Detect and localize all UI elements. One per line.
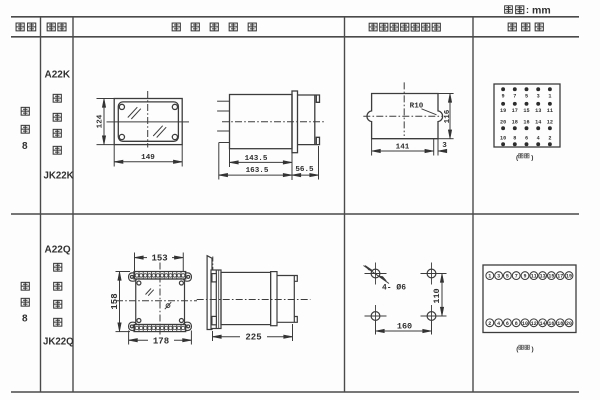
svg-text:16: 16 (523, 119, 529, 125)
svg-text:12: 12 (531, 321, 537, 327)
svg-text:11: 11 (531, 274, 537, 280)
svg-text:3: 3 (497, 274, 500, 280)
svg-text:8: 8 (22, 141, 28, 152)
svg-text:14: 14 (540, 321, 546, 327)
svg-text:A22Q: A22Q (45, 245, 71, 256)
svg-text:12: 12 (547, 119, 553, 125)
svg-text::: : (526, 5, 529, 15)
svg-text:9: 9 (523, 274, 526, 280)
svg-text:8: 8 (513, 136, 516, 142)
svg-text:4: 4 (497, 321, 500, 327)
svg-text:143.5: 143.5 (245, 155, 268, 163)
svg-text:5: 5 (506, 274, 509, 280)
svg-text:): ) (531, 346, 535, 353)
svg-text:15: 15 (548, 274, 554, 280)
svg-text:10: 10 (500, 136, 506, 142)
svg-text:19: 19 (566, 274, 572, 280)
svg-text:20: 20 (500, 119, 506, 125)
svg-text:153: 153 (151, 254, 167, 264)
svg-text:9: 9 (502, 94, 505, 100)
svg-text:3: 3 (537, 94, 540, 100)
svg-text:13: 13 (535, 108, 541, 114)
svg-text:163.5: 163.5 (246, 167, 269, 175)
svg-text:19: 19 (500, 108, 506, 114)
svg-text:11: 11 (547, 108, 553, 114)
svg-text:149: 149 (141, 154, 155, 162)
svg-text:2: 2 (548, 136, 551, 142)
svg-text:124: 124 (97, 114, 105, 128)
svg-text:225: 225 (245, 333, 261, 343)
svg-text:1: 1 (548, 94, 551, 100)
svg-text:10: 10 (522, 321, 528, 327)
svg-text:6: 6 (506, 321, 509, 327)
svg-text:7: 7 (515, 274, 518, 280)
svg-text:JK22K: JK22K (44, 171, 74, 182)
svg-text:13: 13 (540, 274, 546, 280)
svg-text:7: 7 (513, 94, 516, 100)
svg-text:): ) (530, 155, 534, 162)
svg-text:20: 20 (566, 321, 572, 327)
svg-text:141: 141 (396, 143, 410, 151)
svg-text:4: 4 (537, 136, 540, 142)
svg-text:mm: mm (532, 5, 551, 17)
svg-text:116: 116 (444, 109, 452, 123)
svg-text:4- Ø6: 4- Ø6 (382, 284, 406, 293)
svg-text:JK22Q: JK22Q (43, 337, 74, 348)
svg-text:158: 158 (110, 293, 120, 309)
svg-text:2: 2 (488, 321, 491, 327)
svg-text:17: 17 (512, 108, 518, 114)
svg-text:8: 8 (22, 314, 28, 325)
svg-text:18: 18 (557, 321, 563, 327)
svg-text:110: 110 (432, 288, 442, 303)
svg-text:18: 18 (512, 119, 518, 125)
svg-text:3: 3 (442, 142, 447, 150)
svg-text:15: 15 (523, 108, 529, 114)
svg-text:16: 16 (548, 321, 554, 327)
svg-text:160: 160 (397, 321, 412, 331)
svg-text:R10: R10 (410, 103, 424, 111)
svg-text:56.5: 56.5 (295, 166, 314, 174)
svg-text:5: 5 (525, 94, 528, 100)
svg-text:1: 1 (488, 274, 491, 280)
svg-text:178: 178 (153, 336, 169, 346)
svg-text:17: 17 (557, 274, 563, 280)
svg-text:6: 6 (525, 136, 528, 142)
svg-text:A22K: A22K (45, 70, 71, 81)
svg-text:8: 8 (515, 321, 518, 327)
svg-text:14: 14 (535, 119, 541, 125)
